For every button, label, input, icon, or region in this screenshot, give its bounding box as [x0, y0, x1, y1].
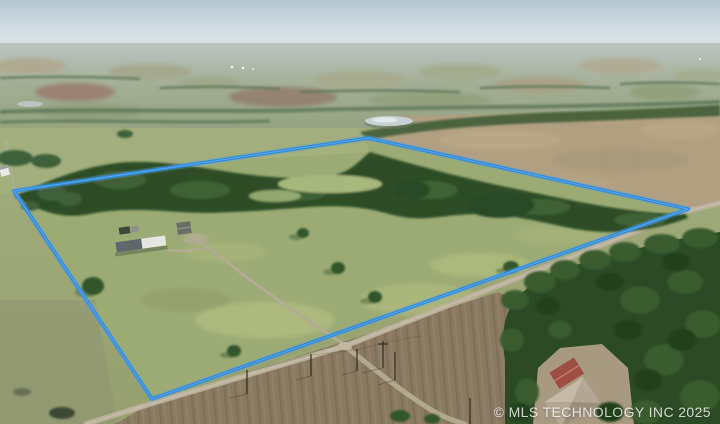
watermark-text: © MLS TECHNOLOGY INC 2025	[494, 404, 711, 420]
pond	[364, 116, 414, 129]
garage	[176, 221, 192, 235]
sky	[0, 0, 720, 47]
shed-2	[131, 225, 140, 232]
small-pond	[17, 101, 43, 107]
aerial-photo	[0, 0, 720, 424]
